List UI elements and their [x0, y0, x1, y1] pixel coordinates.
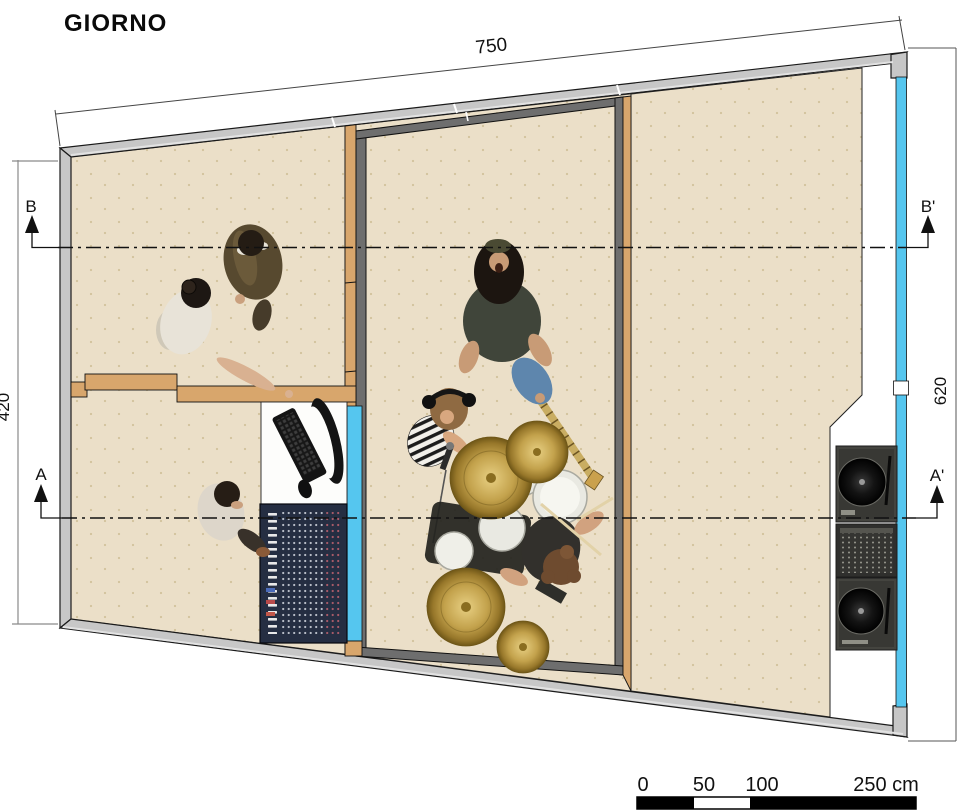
console-blue-switch — [266, 588, 275, 592]
shoe — [256, 547, 270, 557]
section-arrow-icon — [25, 215, 39, 233]
hand — [231, 501, 243, 509]
wall-segment — [85, 374, 177, 390]
dj-mixer — [836, 524, 897, 577]
section-label-b: B — [25, 197, 36, 216]
cap — [485, 239, 511, 253]
dimension-right: 620 — [908, 48, 956, 741]
headphone-cup — [422, 395, 436, 409]
live-room-wall-right — [615, 97, 623, 675]
dimension-label-left: 420 — [0, 393, 13, 421]
dj-turntable-top — [836, 446, 897, 522]
head — [238, 230, 264, 256]
section-arrow-icon — [34, 484, 48, 502]
dimension-label-top: 750 — [474, 34, 508, 58]
section-label-a-prime: A' — [930, 466, 945, 485]
console-red-switch — [266, 600, 275, 604]
headphone-cup — [462, 393, 476, 407]
section-marker-b: B — [25, 197, 58, 248]
scale-segment-black — [750, 797, 916, 809]
mixing-console — [260, 504, 347, 643]
hand — [285, 390, 293, 398]
scale-label-50: 50 — [693, 774, 715, 796]
microphone-head — [446, 442, 454, 450]
face — [440, 410, 454, 424]
hand — [535, 393, 545, 403]
control-room-equipment — [260, 395, 350, 643]
console-knobs-red — [325, 512, 342, 634]
floor-plan-canvas: GIORNO — [0, 0, 960, 812]
snare-drum — [435, 532, 473, 570]
section-marker-a-prime: A' — [916, 466, 944, 518]
dj-setup — [836, 446, 897, 650]
scale-segment-white — [694, 797, 750, 809]
open-mouth — [495, 263, 503, 273]
scale-label-0: 0 — [637, 774, 648, 796]
section-marker-b-prime: B' — [906, 197, 935, 248]
scale-segment-black — [637, 797, 694, 809]
console-red-switch — [266, 612, 275, 616]
console-knobs — [280, 512, 325, 634]
control-room-window — [347, 406, 362, 641]
outer-wall-corner-top-right — [891, 52, 907, 78]
section-marker-a: A — [34, 465, 62, 518]
outer-wall-left — [60, 148, 71, 628]
section-arrow-icon — [930, 485, 944, 503]
glass-mullion — [894, 381, 909, 395]
hand — [235, 294, 245, 304]
scale-label-250: 250 cm — [853, 774, 919, 796]
section-arrow-icon — [921, 215, 935, 233]
right-room-floor — [631, 68, 862, 717]
section-label-a: A — [35, 465, 47, 484]
wood-wall-right-of-live-room — [623, 96, 631, 691]
scale-label-100: 100 — [745, 774, 778, 796]
dj-turntable-bottom — [836, 578, 897, 650]
scale-bar: 0 50 100 250 cm — [637, 774, 919, 809]
section-label-b-prime: B' — [921, 197, 936, 216]
floor-plan-drawing: B B' A A' — [0, 0, 960, 812]
dimension-label-right: 620 — [931, 377, 950, 405]
